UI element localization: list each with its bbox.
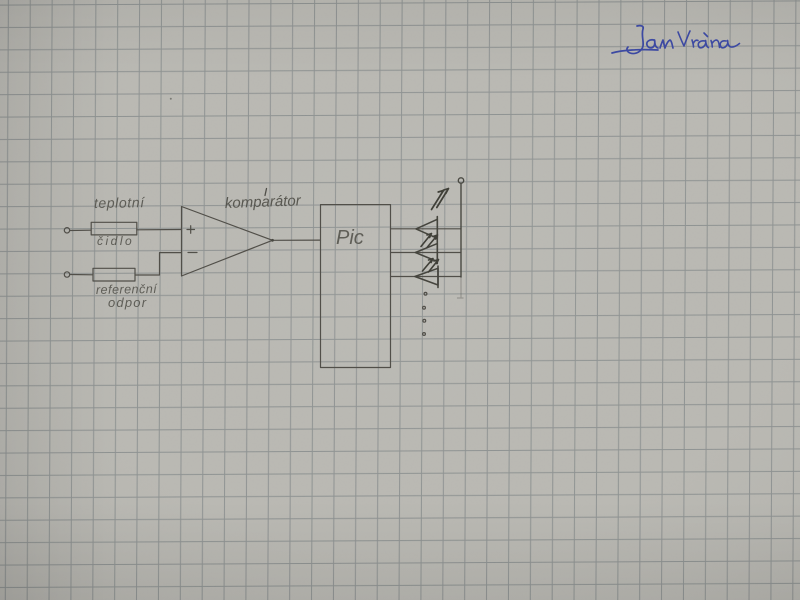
svg-text:komparátor: komparátor xyxy=(225,192,302,212)
svg-text:odpor: odpor xyxy=(108,295,147,310)
svg-text:čidlo: čidlo xyxy=(97,234,134,248)
svg-text:Pic: Pic xyxy=(336,227,364,249)
svg-text:teplotní: teplotní xyxy=(94,194,147,211)
